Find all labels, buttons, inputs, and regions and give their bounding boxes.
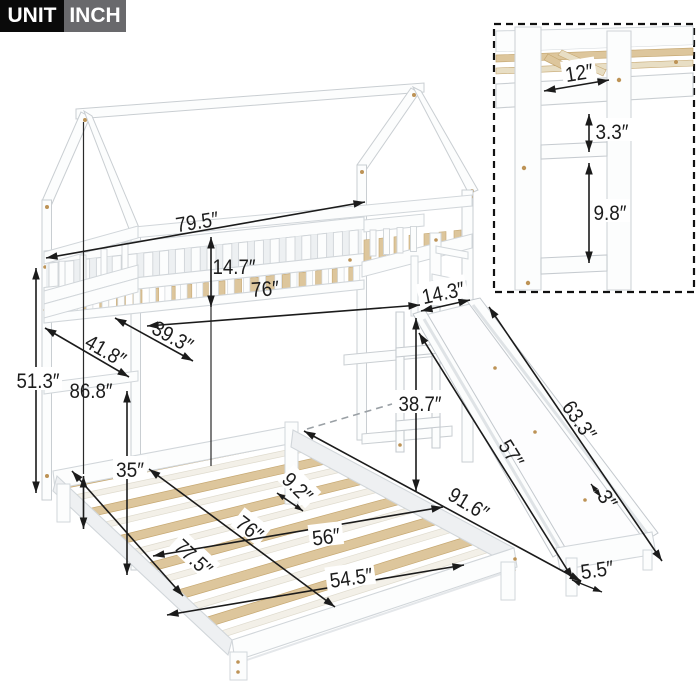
svg-text:86.8″: 86.8″ — [70, 380, 113, 403]
svg-text:51.3″: 51.3″ — [17, 370, 60, 393]
svg-text:9.8″: 9.8″ — [594, 202, 627, 225]
svg-text:14.7″: 14.7″ — [213, 256, 256, 279]
svg-text:5.5″: 5.5″ — [579, 557, 615, 584]
svg-text:3.3″: 3.3″ — [596, 121, 629, 144]
svg-text:35″: 35″ — [116, 459, 145, 482]
svg-text:38.7″: 38.7″ — [399, 393, 442, 416]
svg-text:76″: 76″ — [250, 277, 280, 302]
svg-text:56″: 56″ — [311, 524, 342, 550]
svg-text:12″: 12″ — [564, 60, 596, 87]
